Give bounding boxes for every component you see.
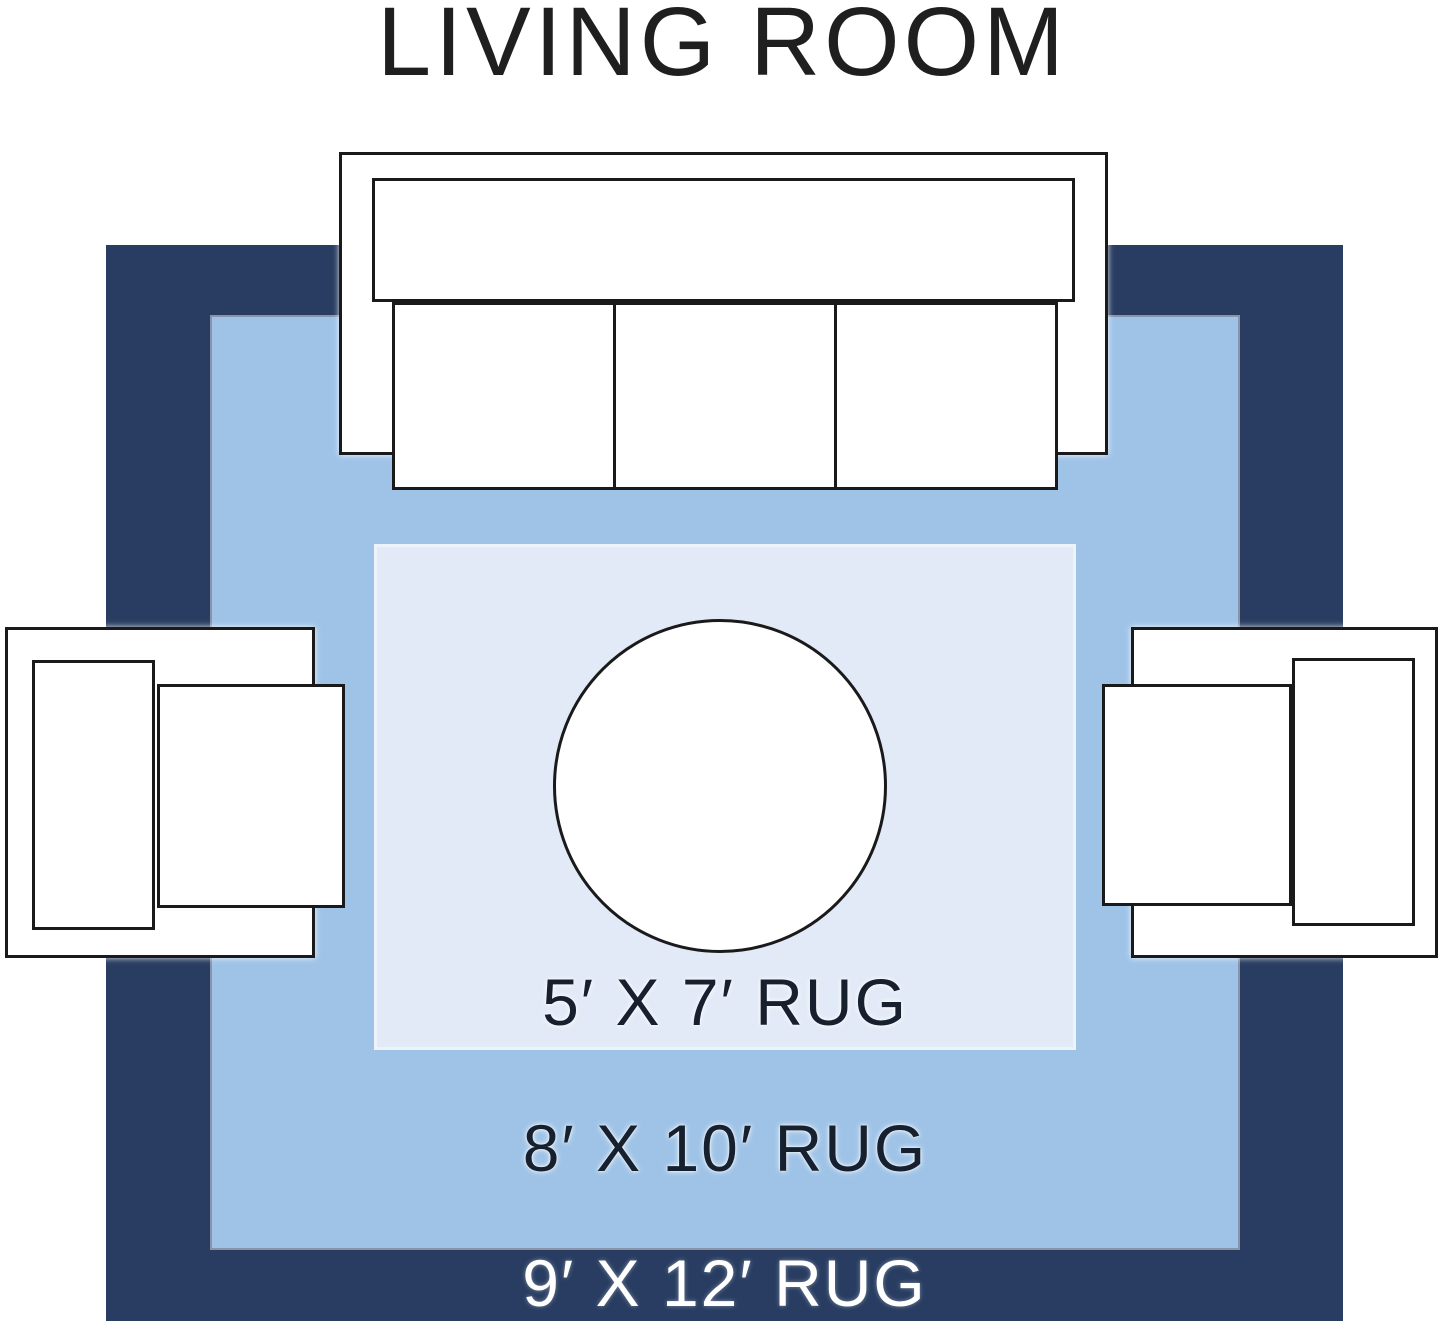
armchair-left-back-cushion <box>32 660 155 930</box>
diagram-title: LIVING ROOM <box>0 0 1445 92</box>
sofa-seat-cushion <box>613 302 837 490</box>
coffee-table <box>553 619 887 953</box>
armchair-right-back-cushion <box>1292 658 1415 926</box>
rug-9x12-label: 9′ X 12′ RUG <box>106 1248 1343 1318</box>
rug-5x7-label: 5′ X 7′ RUG <box>377 967 1073 1037</box>
rug-8x10-label: 8′ X 10′ RUG <box>212 1113 1238 1183</box>
living-room-rug-size-diagram: LIVING ROOM 5′ X 7′ RUG 8′ X 10′ RUG 9′ … <box>0 0 1445 1326</box>
sofa-back-cushion <box>372 178 1075 302</box>
sofa-seat-cushions <box>392 302 1058 490</box>
armchair-right-seat-cushion <box>1102 684 1292 906</box>
sofa-seat-cushion <box>392 302 616 490</box>
armchair-left-seat-cushion <box>157 684 345 908</box>
sofa-seat-cushion <box>834 302 1058 490</box>
